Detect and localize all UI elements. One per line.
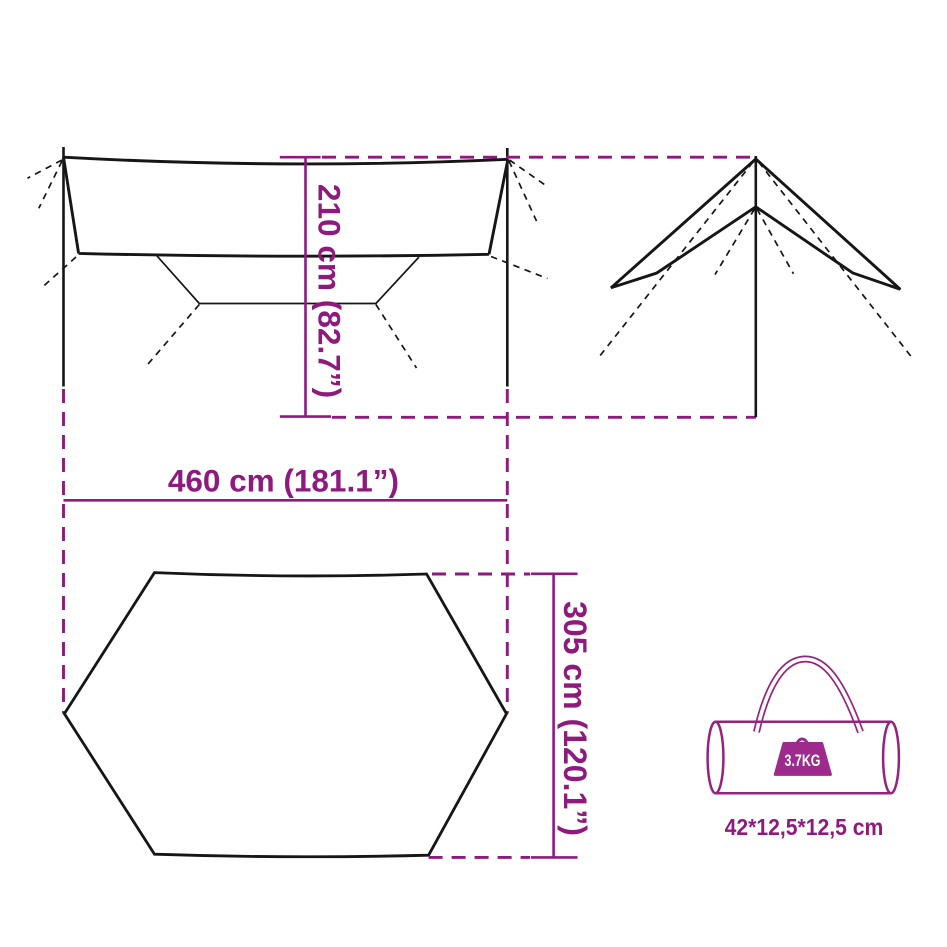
svg-text:305 cm (120.1”): 305 cm (120.1”)	[557, 601, 593, 836]
svg-text:42*12,5*12,5 cm: 42*12,5*12,5 cm	[725, 814, 884, 840]
svg-text:460 cm (181.1”): 460 cm (181.1”)	[168, 463, 399, 499]
svg-text:210 cm (82.7”): 210 cm (82.7”)	[312, 184, 348, 398]
svg-text:3.7KG: 3.7KG	[785, 752, 821, 770]
